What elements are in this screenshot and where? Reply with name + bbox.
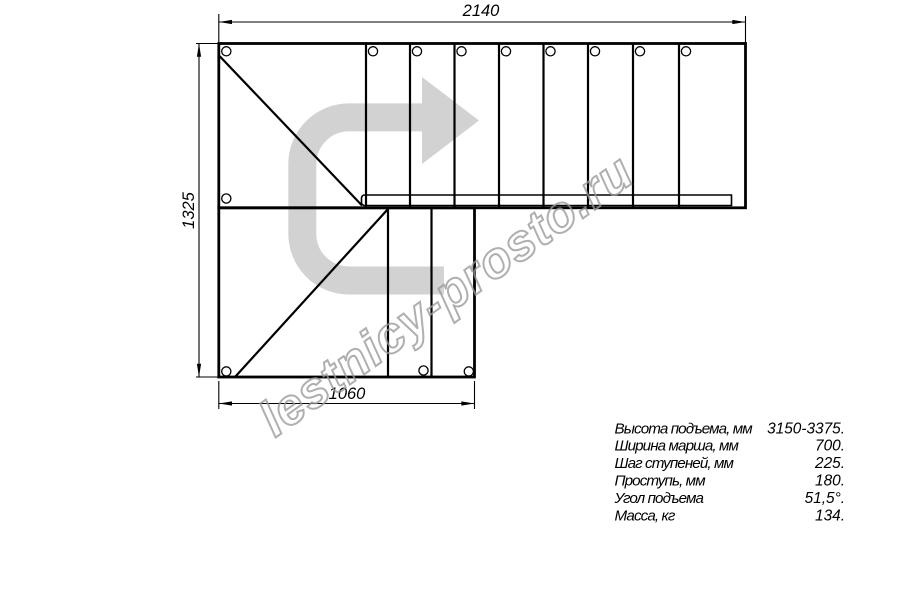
svg-text:51,5°.: 51,5°.	[805, 490, 845, 507]
svg-text:Проступь, мм: Проступь, мм	[615, 473, 707, 490]
svg-text:2140: 2140	[462, 2, 501, 20]
svg-text:1325: 1325	[180, 191, 198, 229]
svg-text:3150-3375.: 3150-3375.	[767, 420, 845, 437]
svg-text:Угол подъема: Угол подъема	[614, 490, 704, 507]
svg-text:225.: 225.	[814, 455, 845, 472]
svg-text:180.: 180.	[815, 473, 845, 490]
svg-text:134.: 134.	[815, 508, 845, 525]
svg-text:Высота подъема, мм: Высота подъема, мм	[615, 420, 754, 437]
svg-text:Ширина марша, мм: Ширина марша, мм	[615, 438, 740, 455]
svg-text:Масса, кг: Масса, кг	[615, 508, 676, 525]
svg-text:Шаг ступеней, мм: Шаг ступеней, мм	[615, 455, 735, 472]
svg-text:700.: 700.	[815, 438, 845, 455]
